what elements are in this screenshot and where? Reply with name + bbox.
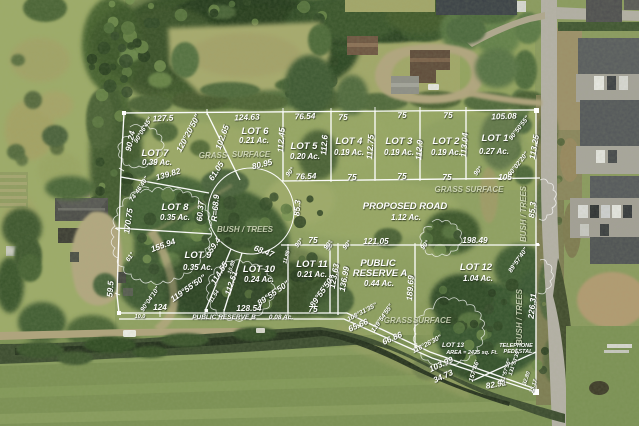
svg-text:76.54: 76.54	[294, 111, 315, 122]
svg-text:BUSH / TREES: BUSH / TREES	[515, 288, 524, 345]
svg-text:LOT 12: LOT 12	[460, 262, 493, 273]
svg-text:1.12 Ac.: 1.12 Ac.	[391, 213, 421, 222]
svg-text:GRASS SURFACE: GRASS SURFACE	[435, 185, 505, 194]
svg-text:75: 75	[443, 110, 453, 120]
svg-text:75: 75	[338, 112, 348, 122]
svg-text:60.37: 60.37	[194, 200, 206, 222]
svg-text:0.19 Ac.: 0.19 Ac.	[431, 148, 461, 157]
svg-text:LOT 9: LOT 9	[185, 250, 213, 261]
svg-text:PROPOSED ROAD: PROPOSED ROAD	[363, 201, 448, 212]
svg-text:112.6: 112.6	[318, 134, 329, 155]
svg-text:189.69: 189.69	[404, 275, 416, 301]
svg-text:75: 75	[397, 171, 407, 181]
svg-text:0.21 Ac.: 0.21 Ac.	[239, 136, 269, 145]
svg-text:59.5: 59.5	[104, 280, 115, 297]
svg-text:85.3: 85.3	[291, 199, 302, 216]
svg-text:0.19 Ac.: 0.19 Ac.	[334, 148, 364, 157]
svg-text:127.5: 127.5	[152, 112, 174, 123]
svg-text:LOT 8: LOT 8	[162, 202, 190, 213]
svg-text:AREA = 2425 sq. Ft.: AREA = 2425 sq. Ft.	[445, 350, 498, 356]
svg-text:0.35 Ac.: 0.35 Ac.	[160, 213, 190, 222]
svg-text:0.19 Ac.: 0.19 Ac.	[384, 148, 414, 157]
svg-text:0.20 Ac.: 0.20 Ac.	[290, 152, 320, 161]
svg-text:LOT 11: LOT 11	[296, 259, 328, 270]
svg-text:75: 75	[397, 110, 407, 120]
svg-text:0.44 Ac.: 0.44 Ac.	[364, 279, 394, 288]
svg-text:105.08: 105.08	[491, 111, 517, 122]
svg-text:SURFACE: SURFACE	[413, 316, 452, 325]
svg-text:10.0: 10.0	[135, 314, 146, 320]
svg-text:BUSH / TREES: BUSH / TREES	[217, 225, 274, 234]
svg-text:LOT 3: LOT 3	[386, 136, 414, 147]
svg-text:0.35 Ac.: 0.35 Ac.	[183, 263, 213, 272]
svg-text:75: 75	[347, 172, 357, 182]
svg-text:128.54: 128.54	[236, 303, 262, 313]
svg-text:0.24 Ac.: 0.24 Ac.	[244, 275, 274, 284]
svg-text:121.05: 121.05	[363, 236, 389, 246]
svg-text:124: 124	[153, 302, 167, 312]
svg-text:0.27 Ac.: 0.27 Ac.	[479, 147, 509, 156]
svg-text:112.9: 112.9	[413, 139, 424, 160]
svg-text:LOT 5: LOT 5	[291, 141, 319, 152]
svg-text:LOT 1: LOT 1	[482, 133, 509, 144]
svg-text:198.49: 198.49	[462, 235, 488, 245]
svg-text:113.04: 113.04	[458, 132, 470, 158]
svg-text:112.45: 112.45	[275, 127, 287, 153]
svg-text:LOT 13: LOT 13	[442, 342, 464, 349]
svg-text:LOT 2: LOT 2	[433, 136, 461, 147]
svg-text:GRASS: GRASS	[199, 151, 228, 160]
svg-text:LOT 4: LOT 4	[336, 136, 364, 147]
svg-text:LOT 10: LOT 10	[243, 264, 276, 275]
svg-text:75: 75	[442, 172, 452, 182]
svg-text:0.39 Ac.: 0.39 Ac.	[142, 158, 172, 167]
svg-text:85.3: 85.3	[526, 201, 538, 218]
svg-text:76.54: 76.54	[295, 171, 316, 182]
svg-text:112.75: 112.75	[364, 134, 376, 160]
svg-text:105: 105	[498, 172, 512, 182]
svg-text:75: 75	[308, 304, 318, 314]
svg-text:PUBLIC RESERVE B: PUBLIC RESERVE B	[192, 314, 256, 321]
svg-text:0.21 Ac.: 0.21 Ac.	[297, 270, 327, 279]
svg-text:0.08 Ac.: 0.08 Ac.	[269, 314, 294, 321]
svg-text:124.63: 124.63	[234, 112, 260, 123]
svg-text:GRASS: GRASS	[384, 316, 413, 325]
svg-text:RESERVE A: RESERVE A	[353, 268, 408, 279]
svg-text:1.04 Ac.: 1.04 Ac.	[463, 274, 493, 283]
svg-text:75: 75	[308, 235, 318, 245]
